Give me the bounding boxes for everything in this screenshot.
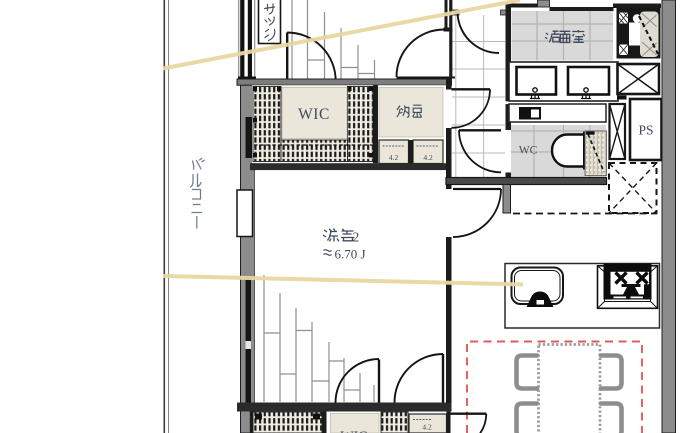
svg-text:4.2: 4.2 (423, 153, 433, 162)
svg-text:6.70 J: 6.70 J (335, 247, 366, 262)
svg-text:4.2: 4.2 (422, 423, 432, 432)
svg-text:PS: PS (638, 123, 653, 138)
svg-text:4.2: 4.2 (389, 153, 399, 162)
svg-text:WIC: WIC (340, 430, 367, 433)
svg-text:WIC: WIC (298, 106, 330, 123)
svg-text:2: 2 (353, 230, 360, 245)
svg-text:WC: WC (519, 145, 538, 157)
